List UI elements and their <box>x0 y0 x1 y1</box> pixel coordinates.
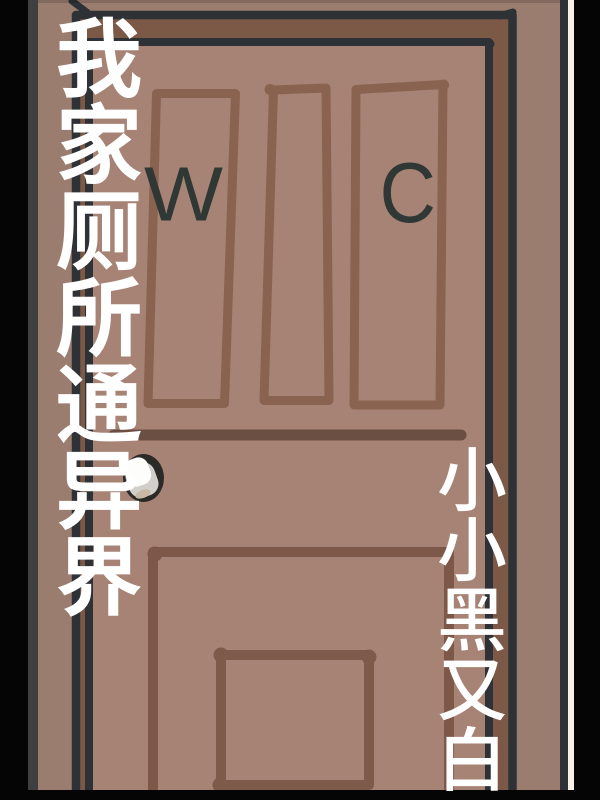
svg-text:W: W <box>144 152 223 238</box>
svg-text:C: C <box>380 146 436 241</box>
